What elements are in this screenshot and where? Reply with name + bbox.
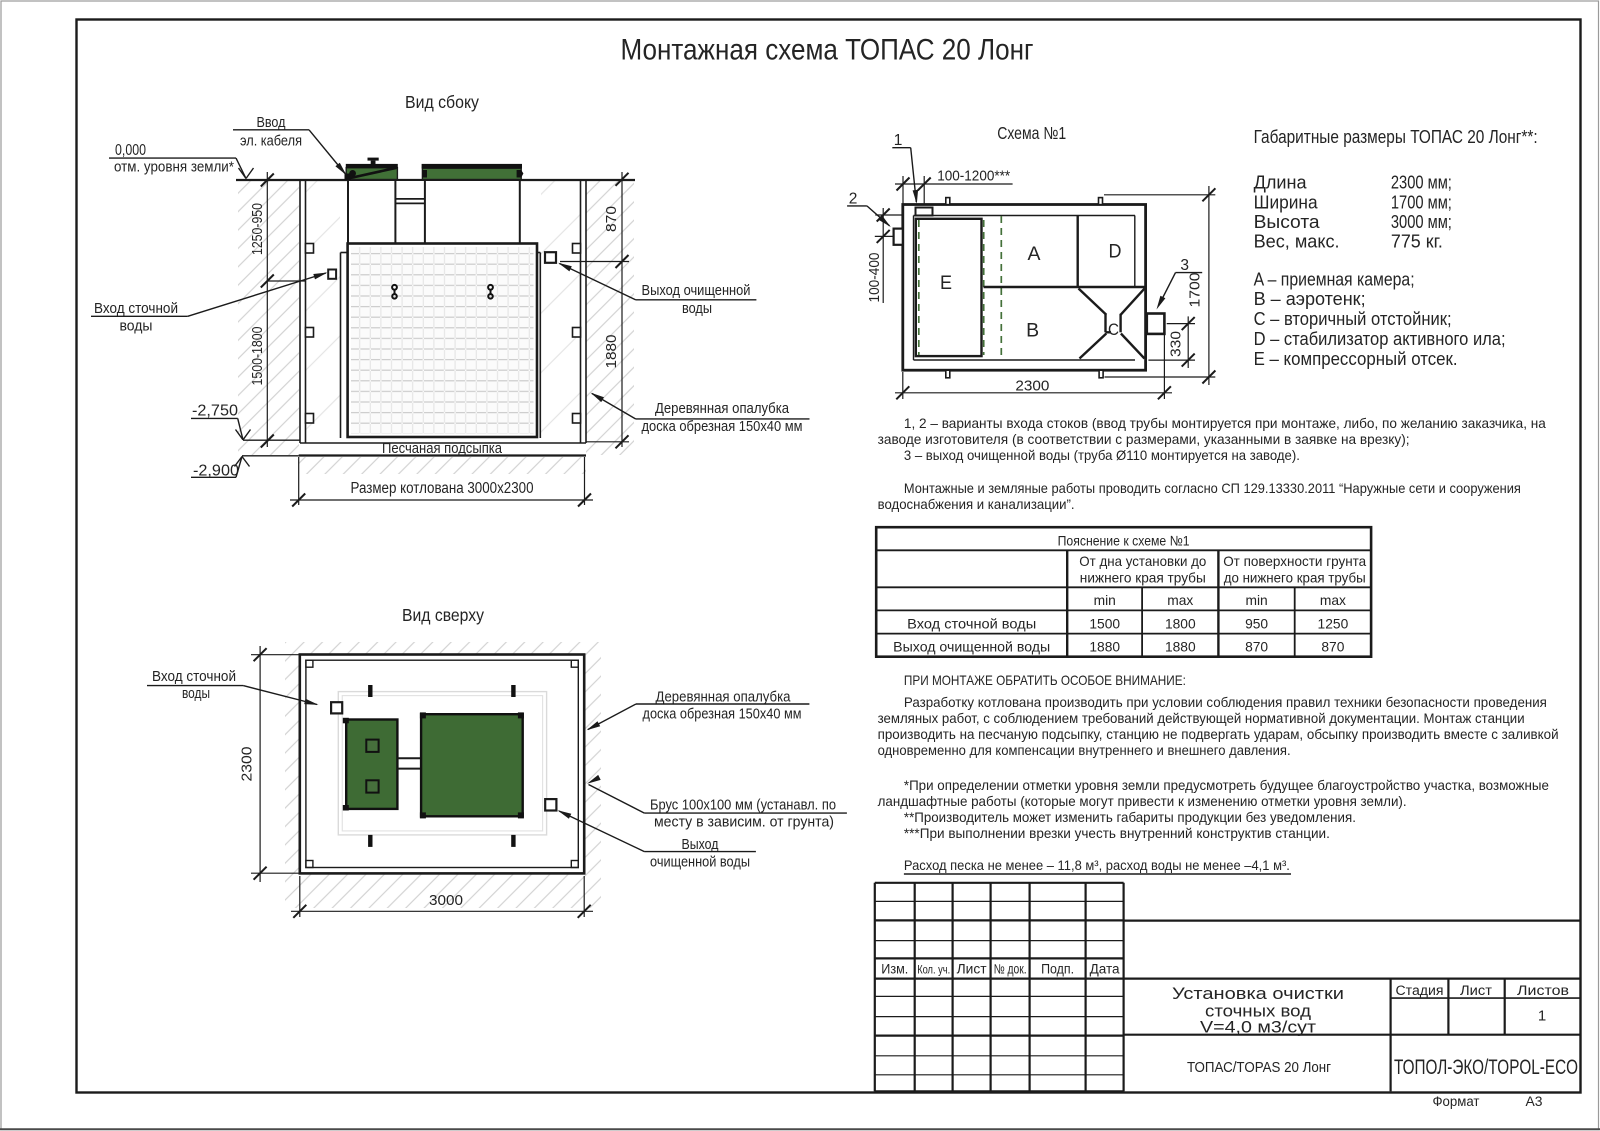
svg-text:B: B xyxy=(1026,320,1039,341)
svg-text:-2,750: -2,750 xyxy=(192,403,238,420)
svg-text:воды: воды xyxy=(120,319,153,335)
svg-text:Длина: Длина xyxy=(1254,172,1308,193)
svg-text:отм. уровня земли*: отм. уровня земли* xyxy=(114,160,234,176)
svg-text:Расход песка не менее – 11,8 м: Расход песка не менее – 11,8 м³, расход … xyxy=(904,858,1290,873)
svg-text:1700: 1700 xyxy=(1187,273,1204,308)
svg-text:Схема №1: Схема №1 xyxy=(997,123,1066,143)
svg-text:B – аэротенк;: B – аэротенк; xyxy=(1254,288,1366,309)
svg-text:775 кг.: 775 кг. xyxy=(1391,230,1443,251)
svg-text:ТОПОЛ-ЭКО/TOPOL-ECO: ТОПОЛ-ЭКО/TOPOL-ECO xyxy=(1394,1056,1578,1079)
svg-text:водоснабжения и канализации”.: водоснабжения и канализации”. xyxy=(878,497,1075,512)
svg-text:870: 870 xyxy=(1245,640,1268,655)
svg-text:эл. кабеля: эл. кабеля xyxy=(240,134,302,150)
svg-text:1250: 1250 xyxy=(1318,616,1349,631)
svg-text:Вид сверху: Вид сверху xyxy=(402,605,484,625)
svg-text:очищенной воды: очищенной воды xyxy=(650,855,750,871)
svg-text:Листов: Листов xyxy=(1517,983,1569,998)
svg-text:Стадия: Стадия xyxy=(1396,983,1444,998)
svg-text:A: A xyxy=(1028,244,1041,265)
svg-text:Ширина: Ширина xyxy=(1254,191,1319,212)
svg-text:производить на песчаную подсып: производить на песчаную подсыпку, станци… xyxy=(878,727,1559,742)
svg-text:***При выполнении врезки учест: ***При выполнении врезки учесть внутренн… xyxy=(904,826,1330,841)
svg-text:Высота: Высота xyxy=(1254,211,1321,232)
svg-text:3 – выход очищенной воды (труб: 3 – выход очищенной воды (труба Ø110 мон… xyxy=(904,448,1300,463)
svg-text:Подп.: Подп. xyxy=(1041,962,1074,977)
svg-text:950: 950 xyxy=(1245,616,1268,631)
svg-text:Лист: Лист xyxy=(957,962,987,977)
svg-text:*При определении отметки уровн: *При определении отметки уровня земли пр… xyxy=(904,778,1549,793)
svg-text:земляных работ, с соблюдением: земляных работ, с соблюдением требований… xyxy=(878,711,1525,726)
svg-text:870: 870 xyxy=(1321,640,1344,655)
svg-text:нижнего края трубы: нижнего края трубы xyxy=(1080,571,1206,586)
svg-text:доска обрезная 150х40 мм: доска обрезная 150х40 мм xyxy=(642,419,803,435)
svg-text:Выход: Выход xyxy=(682,837,719,853)
svg-text:ландшафтные работы (которые мо: ландшафтные работы (которые могут привес… xyxy=(878,794,1407,809)
svg-text:1700 мм;: 1700 мм; xyxy=(1391,191,1452,212)
svg-text:0,000: 0,000 xyxy=(115,142,146,159)
svg-text:Монтажные и земляные работы пр: Монтажные и земляные работы проводить со… xyxy=(904,481,1521,496)
svg-text:1500-1800: 1500-1800 xyxy=(249,327,266,386)
svg-text:Разработку котлована производи: Разработку котлована производить при усл… xyxy=(904,695,1547,710)
svg-text:Песчаная подсыпка: Песчаная подсыпка xyxy=(382,441,503,457)
svg-text:330: 330 xyxy=(1168,331,1185,357)
svg-text:V=4,0 м3/сут: V=4,0 м3/сут xyxy=(1200,1019,1317,1037)
svg-text:Пояснение к схеме №1: Пояснение к схеме №1 xyxy=(1058,533,1190,549)
svg-text:Размер котлована 3000х2300: Размер котлована 3000х2300 xyxy=(351,480,534,497)
svg-text:От дна установки до: От дна установки до xyxy=(1079,554,1206,569)
svg-text:min: min xyxy=(1094,593,1116,608)
svg-text:Выход очищенной: Выход очищенной xyxy=(642,283,751,299)
svg-text:Деревянная опалубка: Деревянная опалубка xyxy=(656,690,792,706)
svg-text:**Производитель может изменить: **Производитель может изменить габариты … xyxy=(904,810,1356,825)
svg-text:доска обрезная 150х40 мм: доска обрезная 150х40 мм xyxy=(643,706,802,722)
svg-text:D – стабилизатор активного ила: D – стабилизатор активного ила; xyxy=(1254,328,1506,349)
svg-text:воды: воды xyxy=(182,686,210,702)
svg-text:3000 мм;: 3000 мм; xyxy=(1391,211,1452,232)
svg-text:2300: 2300 xyxy=(239,747,256,782)
svg-text:100-400: 100-400 xyxy=(866,253,883,303)
svg-text:1800: 1800 xyxy=(1165,616,1196,631)
svg-text:100-1200***: 100-1200*** xyxy=(937,168,1010,185)
svg-text:одновременно для компенсации в: одновременно для компенсации внутреннего… xyxy=(878,743,1291,758)
svg-text:Формат: Формат xyxy=(1433,1094,1480,1109)
svg-text:От поверхности грунта: От поверхности грунта xyxy=(1223,554,1366,569)
svg-text:Вход сточной: Вход сточной xyxy=(152,669,236,685)
svg-text:min: min xyxy=(1245,593,1267,608)
svg-text:870: 870 xyxy=(603,206,620,232)
svg-text:Выход очищенной воды: Выход очищенной воды xyxy=(893,640,1050,655)
svg-text:Вес, макс.: Вес, макс. xyxy=(1254,230,1340,251)
svg-text:C – вторичный отстойник;: C – вторичный отстойник; xyxy=(1254,308,1452,329)
svg-text:Деревянная опалубка: Деревянная опалубка xyxy=(655,401,790,417)
svg-text:Вход сточной: Вход сточной xyxy=(94,301,178,317)
svg-text:Вид сбоку: Вид сбоку xyxy=(405,92,479,112)
svg-text:А3: А3 xyxy=(1526,1094,1543,1109)
svg-text:C: C xyxy=(1108,320,1119,339)
svg-text:A – приемная камера;: A – приемная камера; xyxy=(1254,268,1415,289)
svg-text:D: D xyxy=(1109,241,1122,262)
svg-text:2: 2 xyxy=(849,190,858,207)
svg-text:месту в зависим. от грунта): месту в зависим. от грунта) xyxy=(654,814,834,830)
svg-text:Монтажная схема ТОПАС 20 Лонг: Монтажная схема ТОПАС 20 Лонг xyxy=(621,34,1034,67)
svg-text:ПРИ МОНТАЖЕ ОБРАТИТЬ ОСОБОЕ ВН: ПРИ МОНТАЖЕ ОБРАТИТЬ ОСОБОЕ ВНИМАНИЕ: xyxy=(904,673,1186,688)
svg-text:Установка очистки: Установка очистки xyxy=(1172,985,1344,1003)
svg-text:3: 3 xyxy=(1180,257,1189,274)
svg-text:воды: воды xyxy=(682,301,712,317)
svg-text:2300: 2300 xyxy=(1015,378,1049,395)
svg-text:№ док.: № док. xyxy=(994,962,1027,977)
svg-text:Лист: Лист xyxy=(1460,983,1492,998)
svg-text:Дата: Дата xyxy=(1090,962,1120,977)
svg-text:E: E xyxy=(940,273,952,294)
svg-text:max: max xyxy=(1320,593,1346,608)
svg-text:E – компрессорный отсек.: E – компрессорный отсек. xyxy=(1254,348,1458,369)
svg-text:Вход сточной воды: Вход сточной воды xyxy=(907,616,1036,631)
svg-text:Изм.: Изм. xyxy=(881,962,908,977)
svg-text:2300 мм;: 2300 мм; xyxy=(1391,172,1452,193)
svg-text:1880: 1880 xyxy=(1165,640,1196,655)
svg-text:1500: 1500 xyxy=(1089,616,1120,631)
svg-text:1880: 1880 xyxy=(603,335,620,369)
svg-text:ТОПАС/TOPAS 20 Лонг: ТОПАС/TOPAS 20 Лонг xyxy=(1187,1060,1331,1076)
svg-text:max: max xyxy=(1167,593,1193,608)
svg-text:Брус 100х100 мм (устанавл. по: Брус 100х100 мм (устанавл. по xyxy=(650,797,836,813)
svg-text:1, 2 – варианты входа стоков: 1, 2 – варианты входа стоков (ввод трубы… xyxy=(904,416,1546,431)
svg-text:1250-950: 1250-950 xyxy=(249,203,266,255)
svg-text:1: 1 xyxy=(1538,1008,1546,1025)
svg-text:заводе изготовителя (в соответ: заводе изготовителя (в соответствии с ра… xyxy=(878,432,1410,447)
svg-text:3000: 3000 xyxy=(429,892,463,909)
svg-text:Габаритные размеры ТОПАС 20 Ло: Габаритные размеры ТОПАС 20 Лонг**: xyxy=(1254,126,1538,147)
svg-text:до нижнего края трубы: до нижнего края трубы xyxy=(1224,571,1366,586)
svg-text:1880: 1880 xyxy=(1089,640,1120,655)
svg-text:Кол. уч.: Кол. уч. xyxy=(917,963,950,977)
svg-text:Ввод: Ввод xyxy=(257,115,286,131)
svg-text:1: 1 xyxy=(894,132,903,149)
